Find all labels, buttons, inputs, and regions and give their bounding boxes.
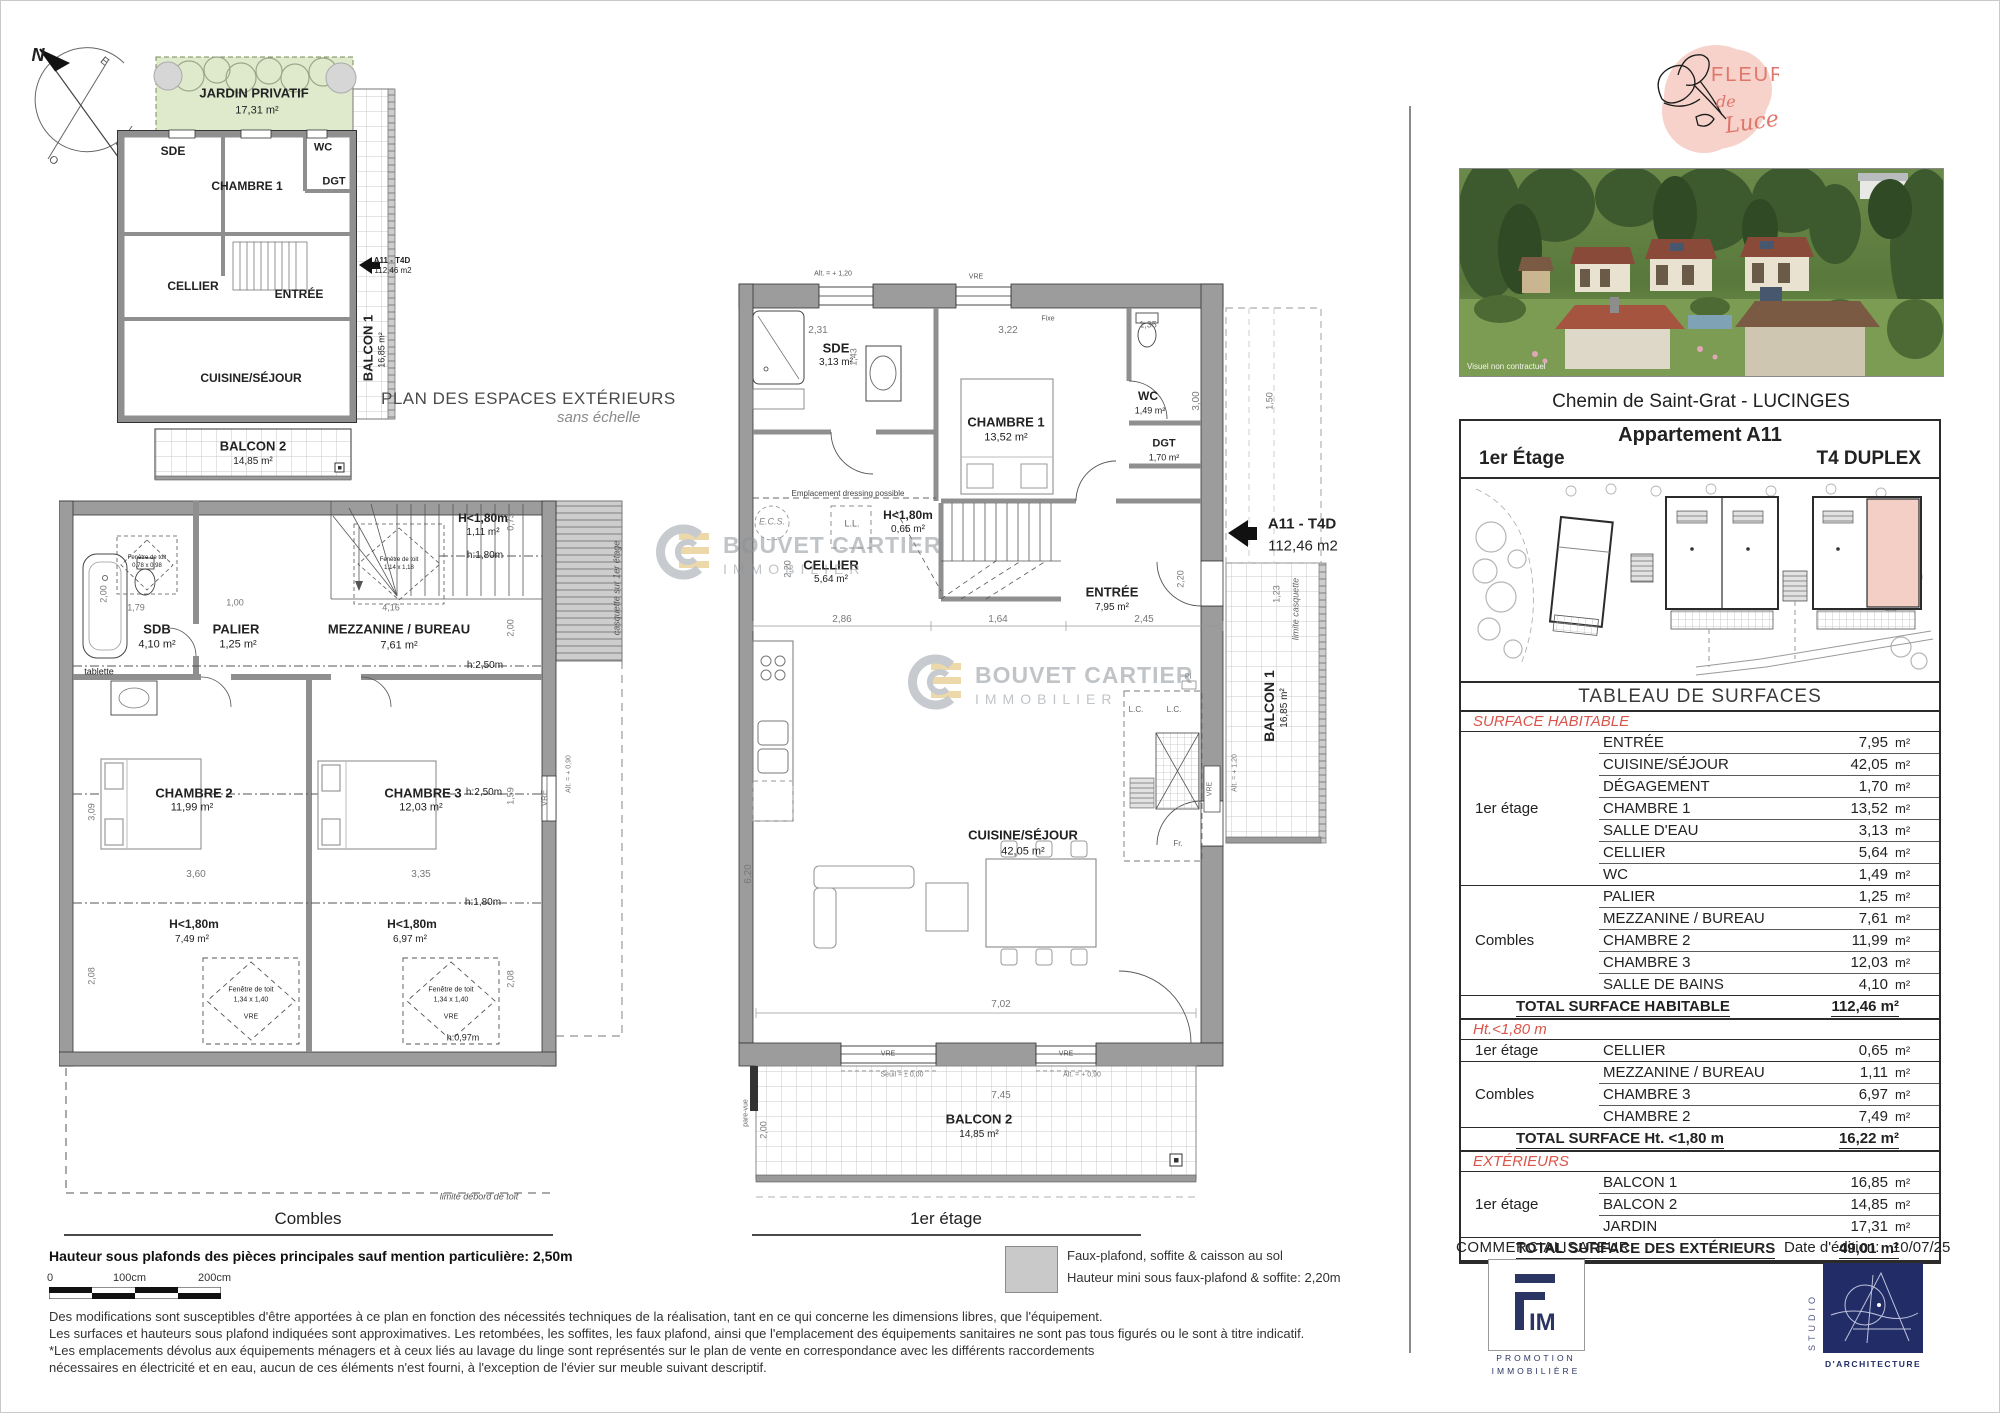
room-name: CHAMBRE 3 bbox=[1599, 954, 1824, 971]
label-dgt-area: 1,70 m² bbox=[1149, 454, 1180, 463]
svg-text:FLEUR: FLEUR bbox=[1711, 64, 1779, 86]
room-area-value: 7,95 bbox=[1824, 734, 1888, 751]
label-h180-area: 0,65 m² bbox=[891, 525, 925, 535]
ceiling-height-note: Hauteur sous plafonds des pièces princip… bbox=[49, 1248, 573, 1264]
room-name: PALIER bbox=[1599, 888, 1824, 905]
room-area-value: 1,11 bbox=[1824, 1064, 1888, 1081]
table-total-row: TOTAL SURFACE Ht. <1,80 m16,22 m² bbox=[1461, 1128, 1939, 1152]
table-group: 1er étageBALCON 116,85m²BALCON 214,85m²J… bbox=[1461, 1172, 1939, 1238]
room-name: SALLE DE BAINS bbox=[1599, 976, 1824, 993]
label-dim: 2,20 bbox=[784, 560, 793, 578]
unit-type: T4 DUPLEX bbox=[1816, 448, 1921, 470]
sheet-divider bbox=[1409, 106, 1411, 1353]
label-cuisine: CUISINE/SÉJOUR bbox=[968, 829, 1078, 842]
table-row: JARDIN17,31m² bbox=[1599, 1215, 1939, 1237]
table-row: WC1,49m² bbox=[1599, 863, 1939, 885]
combles-caption: Combles bbox=[274, 1209, 341, 1229]
label-chambre3-area: 12,03 m² bbox=[399, 803, 442, 814]
label-skym-l1: Fenêtre de toit bbox=[380, 557, 419, 563]
label-skys-l2: 0,78 x 0,98 bbox=[132, 563, 162, 569]
label-ll: L.L. bbox=[844, 520, 859, 529]
label-limite-casq: limite casquette bbox=[1292, 578, 1301, 641]
room-area-value: 3,13 bbox=[1824, 822, 1888, 839]
label-line-h097: h:0,97m bbox=[447, 1034, 480, 1043]
label-lc1: L.C. bbox=[1129, 706, 1144, 714]
room-area-value: 13,52 bbox=[1824, 800, 1888, 817]
room-area-unit: m² bbox=[1888, 1065, 1939, 1080]
room-name: CHAMBRE 1 bbox=[1599, 800, 1824, 817]
room-area-unit: m² bbox=[1888, 1175, 1939, 1190]
total-label: TOTAL SURFACE HABITABLE bbox=[1516, 998, 1730, 1017]
label-a11-area: 112,46 m2 bbox=[374, 267, 411, 275]
surface-table-title: TABLEAU DE SURFACES bbox=[1459, 683, 1941, 712]
label-line-h180: h:1,80m bbox=[467, 551, 503, 561]
table-row: CHAMBRE 113,52m² bbox=[1599, 797, 1939, 819]
legend-swatch bbox=[1005, 1246, 1058, 1293]
room-name: CHAMBRE 2 bbox=[1599, 932, 1824, 949]
label-cellier-area: 5,64 m² bbox=[814, 575, 848, 585]
label-alt-right: Alt. = + 0,90 bbox=[566, 755, 573, 793]
room-name: ENTRÉE bbox=[1599, 734, 1824, 751]
project-photo: Visuel non contractuel bbox=[1459, 168, 1944, 377]
label-lc2: L.C. bbox=[1167, 706, 1182, 714]
room-area-unit: m² bbox=[1888, 801, 1939, 816]
label-sde: SDE bbox=[823, 342, 850, 355]
table-row: ENTRÉE7,95m² bbox=[1599, 732, 1939, 753]
total-value: 112,46 m² bbox=[1831, 998, 1899, 1017]
label-sdb-area: 4,10 m² bbox=[138, 640, 175, 651]
label-ecs: E.C.S. bbox=[759, 518, 785, 527]
table-group: 1er étageCELLIER0,65m² bbox=[1461, 1040, 1939, 1062]
studio-sub-label: D'ARCHITECTURE bbox=[1825, 1359, 1921, 1369]
label-vre-top: VRE bbox=[969, 274, 983, 281]
label-balcon1: BALCON 1 bbox=[362, 315, 375, 381]
label-dim: 1,23 bbox=[1273, 585, 1282, 603]
room-name: BALCON 1 bbox=[1599, 1174, 1824, 1191]
label-chambre2: CHAMBRE 2 bbox=[155, 787, 232, 800]
label-dim: 3,22 bbox=[998, 326, 1017, 336]
legend-line2: Hauteur mini sous faux-plafond & soffite… bbox=[1067, 1270, 1341, 1285]
edition-date-label: Date d'édition: bbox=[1784, 1239, 1879, 1256]
label-sky2-l1: Fenêtre de toit bbox=[428, 987, 473, 994]
label-a11-area: 112,46 m2 bbox=[1268, 539, 1338, 554]
notes-paragraph-3: *Les emplacements dévolus aux équipement… bbox=[49, 1342, 1094, 1359]
table-group: ComblesPALIER1,25m²MEZZANINE / BUREAU7,6… bbox=[1461, 886, 1939, 996]
room-area-value: 1,25 bbox=[1824, 888, 1888, 905]
label-line-h180b: h:1,80m bbox=[465, 898, 501, 908]
label-chambre3: CHAMBRE 3 bbox=[384, 787, 461, 800]
first-floor-caption: 1er étage bbox=[910, 1209, 982, 1229]
first-floor-plan: Alt. = + 1,20VREFixe2,311,433,22SDE3,13 … bbox=[736, 261, 1346, 1236]
room-area-unit: m² bbox=[1888, 867, 1939, 882]
label-dgt: DGT bbox=[1152, 439, 1175, 450]
table-row: BALCON 116,85m² bbox=[1599, 1172, 1939, 1193]
label-palier-area: 1,25 m² bbox=[219, 640, 256, 651]
fim-sub1: PROMOTION bbox=[1481, 1353, 1591, 1363]
project-address: Chemin de Saint-Grat - LUCINGES bbox=[1552, 391, 1850, 413]
table-row: PALIER1,25m² bbox=[1599, 886, 1939, 907]
label-skym-l2: 1,14 x 1,18 bbox=[384, 565, 414, 571]
label-dim: 2,00 bbox=[507, 619, 516, 637]
label-dim: 2,31 bbox=[808, 326, 827, 336]
table-row: SALLE D'EAU3,13m² bbox=[1599, 819, 1939, 841]
table-row: MEZZANINE / BUREAU7,61m² bbox=[1599, 907, 1939, 929]
room-area-unit: m² bbox=[1888, 955, 1939, 970]
label-dim: 2,08 bbox=[88, 967, 97, 985]
label-sky1-l3: VRE bbox=[244, 1014, 258, 1021]
label-dim: 7,02 bbox=[991, 1000, 1010, 1010]
label-parevue: pare-vue bbox=[743, 1099, 750, 1127]
room-area-value: 7,49 bbox=[1824, 1108, 1888, 1125]
label-balcon2-area: 14,85 m² bbox=[233, 457, 272, 467]
label-chambre1: CHAMBRE 1 bbox=[967, 416, 1044, 429]
label-dim: 1,64 bbox=[988, 615, 1007, 625]
label-sky1-l1: Fenêtre de toit bbox=[228, 987, 273, 994]
table-row: MEZZANINE / BUREAU1,11m² bbox=[1599, 1062, 1939, 1083]
label-dim: 2,00 bbox=[100, 585, 109, 603]
room-area-value: 0,65 bbox=[1824, 1042, 1888, 1059]
label-mezzanine: MEZZANINE / BUREAU bbox=[328, 623, 470, 636]
room-area-unit: m² bbox=[1888, 1197, 1939, 1212]
fleur-de-luce-logo: FLEUR de Luce bbox=[1634, 41, 1779, 159]
room-area-value: 42,05 bbox=[1824, 756, 1888, 773]
room-area-value: 5,64 bbox=[1824, 844, 1888, 861]
group-label: 1er étage bbox=[1461, 1040, 1599, 1061]
room-area-value: 1,49 bbox=[1824, 866, 1888, 883]
label-dim: 0,73 bbox=[507, 513, 516, 531]
label-entree-area: 7,95 m² bbox=[1095, 603, 1129, 613]
label-entree: ENTRÉE bbox=[1086, 586, 1139, 599]
table-section-ext-rieurs: EXTÉRIEURS bbox=[1461, 1152, 1939, 1172]
label-sky2-l3: VRE bbox=[444, 1014, 458, 1021]
plan-sheet: NESO bbox=[0, 0, 2000, 1413]
group-label: Combles bbox=[1461, 886, 1599, 995]
label-dgt: DGT bbox=[322, 177, 345, 188]
label-balcon1-area: 16,85 m² bbox=[1280, 688, 1290, 727]
label-vre-right: VRE bbox=[541, 790, 549, 806]
room-area-unit: m² bbox=[1888, 1043, 1939, 1058]
table-row: CHAMBRE 36,97m² bbox=[1599, 1083, 1939, 1105]
scale-200: 200cm bbox=[198, 1272, 231, 1284]
label-pl: Pl bbox=[1185, 674, 1191, 681]
room-area-unit: m² bbox=[1888, 977, 1939, 992]
label-wc: WC bbox=[1138, 390, 1158, 402]
label-sdb: SDB bbox=[143, 623, 170, 636]
label-chambre2-area: 11,99 m² bbox=[171, 803, 214, 814]
table-row: CHAMBRE 211,99m² bbox=[1599, 929, 1939, 951]
room-area-value: 11,99 bbox=[1824, 932, 1888, 949]
studio-vertical-label: STUDIO bbox=[1807, 1293, 1817, 1351]
room-area-unit: m² bbox=[1888, 889, 1939, 904]
room-name: CHAMBRE 3 bbox=[1599, 1086, 1824, 1103]
exterior-plan-subtitle: sans échelle bbox=[557, 409, 640, 426]
studio-architecture-logo bbox=[1823, 1263, 1923, 1353]
label-h180-ch2: H<1,80m bbox=[169, 918, 219, 930]
room-area-value: 16,85 bbox=[1824, 1174, 1888, 1191]
label-tablette: tablette bbox=[84, 668, 114, 677]
label-a11-code: A11 - T4D bbox=[374, 257, 410, 265]
notes-paragraph-4: nécessaires en électricité et en eau, au… bbox=[49, 1359, 767, 1376]
unit-floor: 1er Étage bbox=[1479, 448, 1565, 470]
label-h180-ch2-area: 7,49 m² bbox=[175, 935, 209, 945]
room-name: CELLIER bbox=[1599, 844, 1824, 861]
room-name: CELLIER bbox=[1599, 1042, 1824, 1059]
label-mezzanine-area: 7,61 m² bbox=[380, 641, 417, 652]
first-caption-rule bbox=[752, 1234, 1141, 1236]
group-label: 1er étage bbox=[1461, 1172, 1599, 1237]
group-label: Combles bbox=[1461, 1062, 1599, 1127]
label-h180-ch3: H<1,80m bbox=[387, 918, 437, 930]
table-row: BALCON 214,85m² bbox=[1599, 1193, 1939, 1215]
label-jardin-title: JARDIN PRIVATIF bbox=[199, 87, 308, 100]
label-sky1-l2: 1,34 x 1,40 bbox=[234, 997, 269, 1004]
fim-logo-mark: IM bbox=[1529, 1309, 1556, 1336]
room-area-unit: m² bbox=[1888, 933, 1939, 948]
room-name: CUISINE/SÉJOUR bbox=[1599, 756, 1824, 773]
label-limite-toit: limite débord de toit bbox=[440, 1193, 519, 1202]
label-entree: ENTRÉE bbox=[275, 288, 324, 300]
total-value: 16,22 m² bbox=[1839, 1130, 1899, 1149]
table-section-ht-1-80-m: Ht.<1,80 m bbox=[1461, 1020, 1939, 1040]
label-seuil: Seuil = ± 0,00 bbox=[881, 1072, 924, 1079]
edition-date-value: 10/07/25 bbox=[1892, 1239, 1950, 1256]
label-dressing: Emplacement dressing possible bbox=[792, 490, 905, 498]
label-balcon2: BALCON 2 bbox=[946, 1113, 1012, 1126]
label-jardin-area: 17,31 m² bbox=[235, 106, 278, 117]
label-balcon1-area: 16,85 m² bbox=[378, 332, 387, 368]
room-name: JARDIN bbox=[1599, 1218, 1824, 1235]
label-dim: 7,45 bbox=[991, 1091, 1010, 1101]
table-group: ComblesMEZZANINE / BUREAU1,11m²CHAMBRE 3… bbox=[1461, 1062, 1939, 1128]
room-name: MEZZANINE / BUREAU bbox=[1599, 910, 1824, 927]
room-area-value: 12,03 bbox=[1824, 954, 1888, 971]
label-wc-area: 1,49 m² bbox=[1135, 407, 1166, 416]
exterior-plan-title: PLAN DES ESPACES EXTÉRIEURS bbox=[381, 389, 676, 409]
label-line-h250b: h:2,50m bbox=[466, 788, 502, 798]
room-area-value: 4,10 bbox=[1824, 976, 1888, 993]
label-h180-ch3-area: 6,97 m² bbox=[393, 935, 427, 945]
room-name: WC bbox=[1599, 866, 1824, 883]
scale-100: 100cm bbox=[113, 1272, 146, 1284]
label-vre-wall: VRE bbox=[1207, 782, 1214, 796]
label-vre-b1: VRE bbox=[881, 1051, 895, 1058]
label-balcon1: BALCON 1 bbox=[1262, 670, 1276, 742]
label-sky2-l2: 1,34 x 1,40 bbox=[434, 997, 469, 1004]
label-vre-b2: VRE bbox=[1059, 1051, 1073, 1058]
room-area-value: 6,97 bbox=[1824, 1086, 1888, 1103]
label-sde-area: 3,13 m² bbox=[819, 358, 853, 368]
label-alt-b: Alt. = + 0,90 bbox=[1063, 1072, 1101, 1079]
room-name: BALCON 2 bbox=[1599, 1196, 1824, 1213]
unit-header-box: Appartement A11 1er Étage T4 DUPLEX bbox=[1459, 419, 1941, 479]
room-area-value: 17,31 bbox=[1824, 1218, 1888, 1235]
label-dim: 6,20 bbox=[744, 864, 754, 883]
surface-table: SURFACE HABITABLE1er étageENTRÉE7,95m²CU… bbox=[1459, 712, 1941, 1264]
scale-0: 0 bbox=[47, 1272, 53, 1284]
room-name: SALLE D'EAU bbox=[1599, 822, 1824, 839]
combles-floor-plan: SDB4,10 m²PALIER1,25 m²MEZZANINE / BUREA… bbox=[59, 496, 629, 1206]
table-row: CHAMBRE 27,49m² bbox=[1599, 1105, 1939, 1127]
label-fixe: Fixe bbox=[1041, 316, 1054, 323]
label-cellier: CELLIER bbox=[167, 280, 218, 292]
label-fr: Fr. bbox=[1173, 840, 1182, 848]
label-h180-mezz: H<1,80m bbox=[458, 512, 508, 524]
label-cellier: CELLIER bbox=[803, 559, 859, 572]
unit-title: Appartement A11 bbox=[1461, 424, 1939, 447]
surface-table-title-text: TABLEAU DE SURFACES bbox=[1578, 686, 1822, 708]
notes-paragraph-2: Les surfaces et hauteurs sous plafond in… bbox=[49, 1325, 1304, 1342]
label-wc: WC bbox=[314, 143, 332, 154]
room-area-unit: m² bbox=[1888, 1219, 1939, 1234]
combles-caption-rule bbox=[64, 1234, 553, 1236]
label-sde: SDE bbox=[161, 145, 186, 157]
scale-bar bbox=[49, 1286, 221, 1304]
total-label: TOTAL SURFACE Ht. <1,80 m bbox=[1516, 1130, 1724, 1149]
photo-disclaimer: Visuel non contractuel bbox=[1467, 362, 1546, 371]
label-dim: 3,00 bbox=[1192, 391, 1202, 410]
label-cuisine-area: 42,05 m² bbox=[1001, 847, 1044, 858]
label-dim: 3,60 bbox=[186, 870, 205, 880]
label-chambre1-area: 13,52 m² bbox=[984, 433, 1027, 444]
room-name: DÉGAGEMENT bbox=[1599, 778, 1824, 795]
edition-date: Date d'édition: 10/07/25 bbox=[1784, 1239, 1950, 1256]
label-balcon2: BALCON 2 bbox=[220, 440, 286, 453]
label-dim: 3,35 bbox=[411, 870, 430, 880]
label-a11-code: A11 - T4D bbox=[1268, 517, 1336, 532]
room-area-unit: m² bbox=[1888, 757, 1939, 772]
label-line-h250: h:2,50m bbox=[467, 661, 503, 671]
group-label: 1er étage bbox=[1461, 732, 1599, 885]
label-dim: 1,79 bbox=[127, 604, 145, 613]
label-dim: 3,09 bbox=[88, 803, 97, 821]
commercialisateur-label: COMMERCIALISATEUR bbox=[1456, 1239, 1630, 1256]
label-palier: PALIER bbox=[213, 623, 260, 636]
label-dim: 1,35 bbox=[1139, 321, 1157, 330]
label-casquette: casquette sur 1er étage bbox=[613, 541, 622, 636]
room-area-value: 14,85 bbox=[1824, 1196, 1888, 1213]
label-h180-mezz-area: 1,11 m² bbox=[466, 528, 499, 538]
table-row: CHAMBRE 312,03m² bbox=[1599, 951, 1939, 973]
site-plan bbox=[1459, 479, 1941, 683]
table-row: SALLE DE BAINS4,10m² bbox=[1599, 973, 1939, 995]
room-area-unit: m² bbox=[1888, 779, 1939, 794]
label-dim: 2,45 bbox=[1134, 615, 1153, 625]
label-compass-n: N bbox=[32, 46, 45, 64]
exterior-spaces-plan: JARDIN PRIVATIF17,31 m²SDECHAMBRE 1WCDGT… bbox=[111, 36, 411, 486]
room-area-unit: m² bbox=[1888, 911, 1939, 926]
label-dim: 1,50 bbox=[1266, 392, 1275, 410]
label-skys-l1: Fenêtre de toit bbox=[128, 555, 167, 561]
label-dim: 1,59 bbox=[507, 787, 516, 805]
label-cuisine: CUISINE/SÉJOUR bbox=[200, 372, 301, 384]
room-area-value: 1,70 bbox=[1824, 778, 1888, 795]
label-dim: 2,00 bbox=[760, 1121, 769, 1139]
label-dim: 1,00 bbox=[226, 599, 244, 608]
room-area-unit: m² bbox=[1888, 823, 1939, 838]
label-alt-top: Alt. = + 1,20 bbox=[814, 271, 852, 278]
table-row: CELLIER0,65m² bbox=[1599, 1040, 1939, 1061]
exterior-plan-drawing bbox=[111, 36, 411, 486]
label-dim: 2,86 bbox=[832, 615, 851, 625]
table-row: DÉGAGEMENT1,70m² bbox=[1599, 775, 1939, 797]
first-floor-plan-drawing bbox=[736, 261, 1346, 1236]
table-total-row: TOTAL SURFACE HABITABLE112,46 m² bbox=[1461, 996, 1939, 1020]
label-dim: 4,16 bbox=[382, 604, 400, 613]
bouvet-cartier-logo-icon bbox=[649, 523, 713, 585]
svg-text:de: de bbox=[1716, 92, 1736, 111]
label-balcon2-area: 14,85 m² bbox=[959, 1130, 998, 1140]
table-row: CELLIER5,64m² bbox=[1599, 841, 1939, 863]
label-dim: 2,20 bbox=[1177, 570, 1186, 588]
room-area-unit: m² bbox=[1888, 845, 1939, 860]
room-name: MEZZANINE / BUREAU bbox=[1599, 1064, 1824, 1081]
label-dim: 2,08 bbox=[507, 970, 516, 988]
room-name: CHAMBRE 2 bbox=[1599, 1108, 1824, 1125]
fim-logo: IM bbox=[1488, 1259, 1585, 1351]
legend-line1: Faux-plafond, soffite & caisson au sol bbox=[1067, 1248, 1283, 1263]
table-group: 1er étageENTRÉE7,95m²CUISINE/SÉJOUR42,05… bbox=[1461, 732, 1939, 886]
label-chambre1: CHAMBRE 1 bbox=[211, 180, 282, 192]
room-area-value: 7,61 bbox=[1824, 910, 1888, 927]
label-h180: H<1,80m bbox=[883, 509, 933, 521]
notes-paragraph-1: Des modifications sont susceptibles d'êt… bbox=[49, 1308, 1103, 1325]
room-area-unit: m² bbox=[1888, 1109, 1939, 1124]
fim-sub2: IMMOBILIÈRE bbox=[1481, 1366, 1591, 1376]
label-alt-balc: Alt. = + 1,20 bbox=[1232, 754, 1239, 792]
room-area-unit: m² bbox=[1888, 735, 1939, 750]
table-row: CUISINE/SÉJOUR42,05m² bbox=[1599, 753, 1939, 775]
table-section-surface-habitable: SURFACE HABITABLE bbox=[1461, 712, 1939, 732]
room-area-unit: m² bbox=[1888, 1087, 1939, 1102]
